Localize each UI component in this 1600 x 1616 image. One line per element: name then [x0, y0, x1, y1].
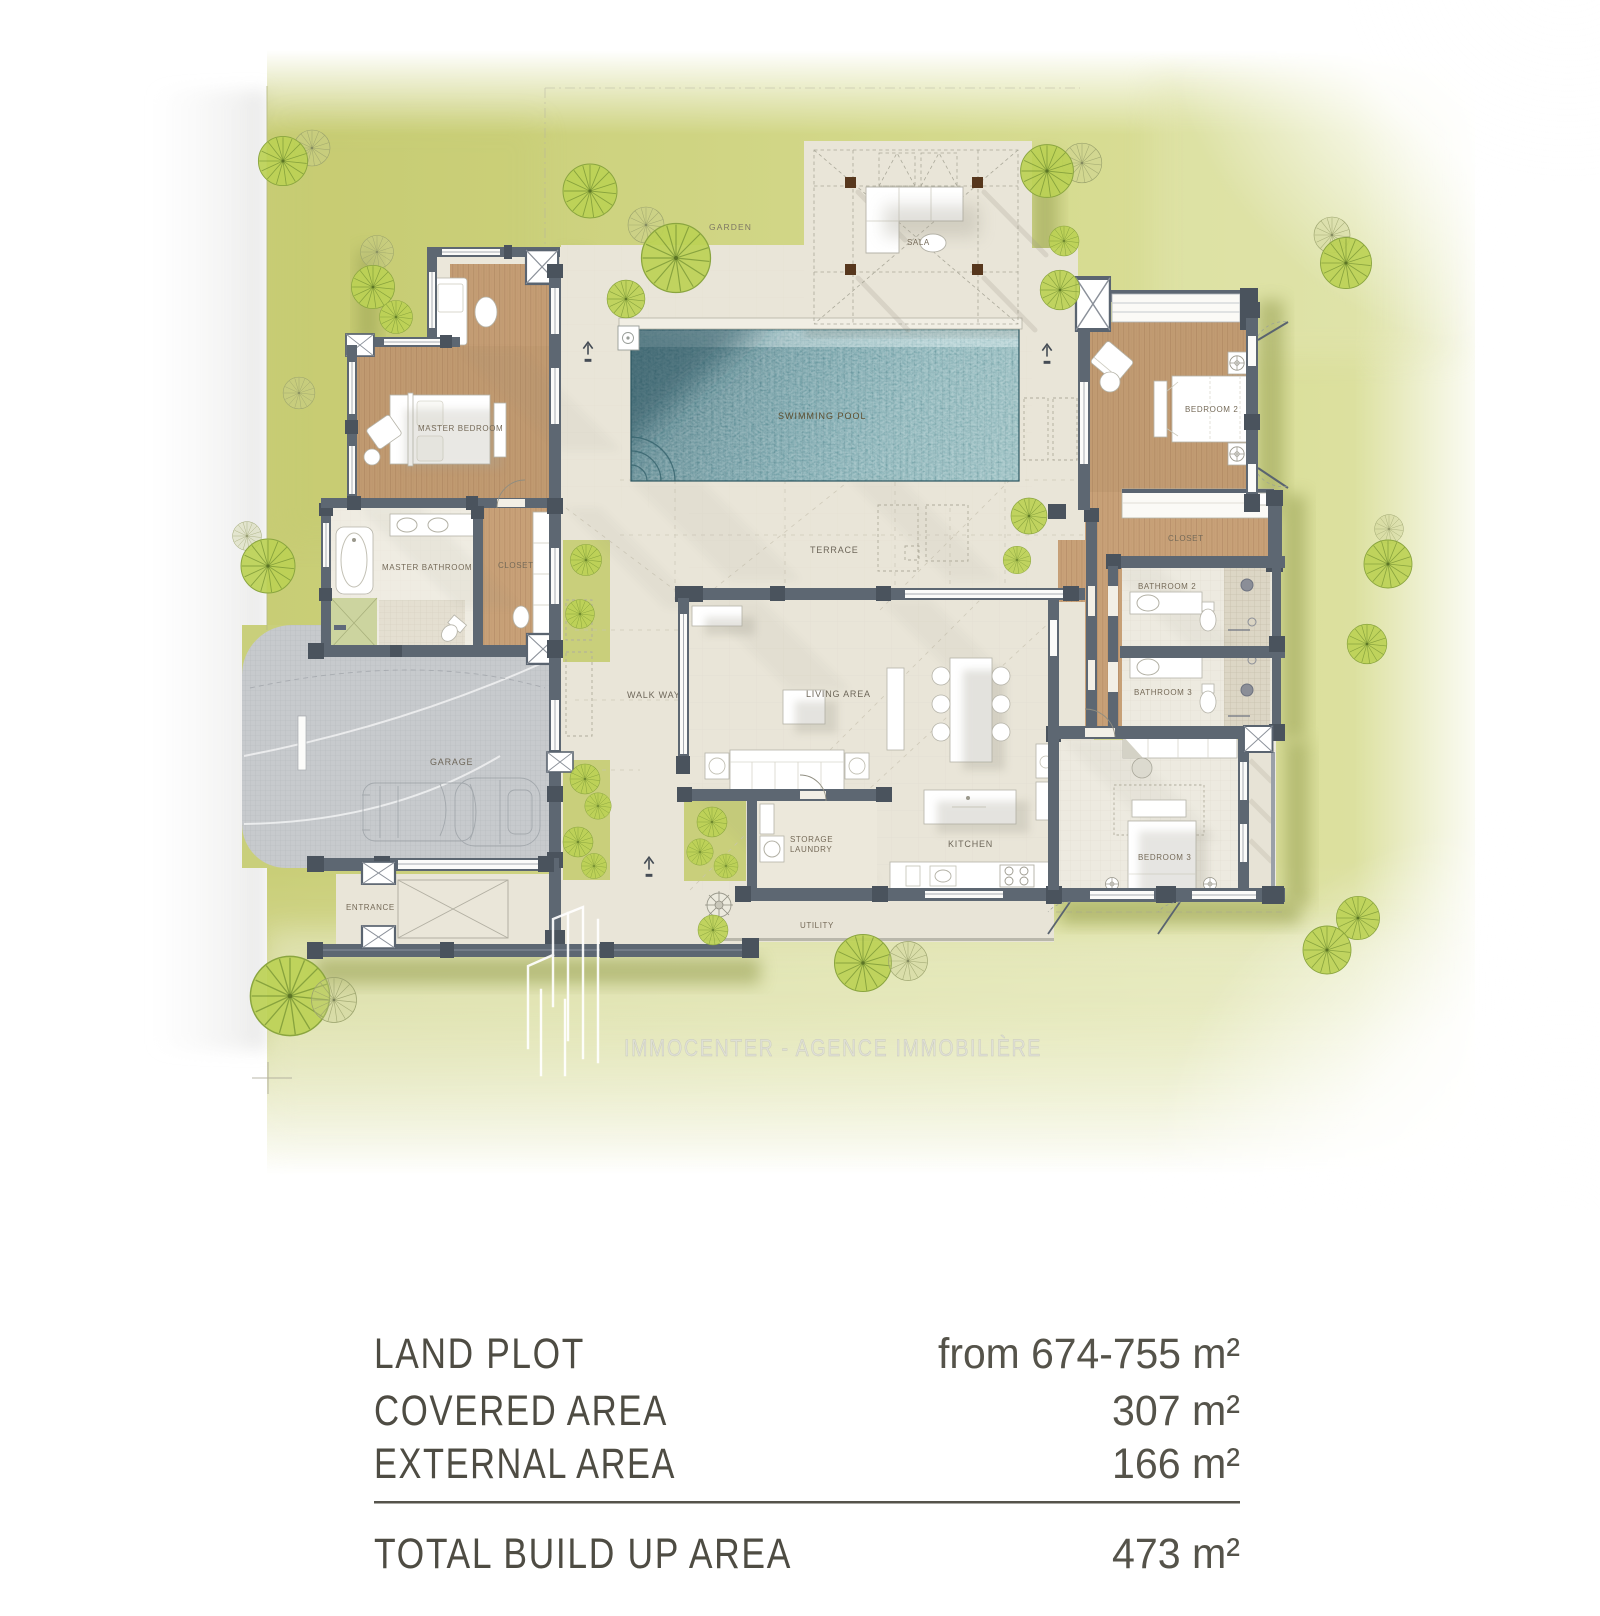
svg-text:STORAGE: STORAGE [790, 835, 833, 844]
svg-text:CLOSET: CLOSET [498, 561, 534, 570]
svg-text:BATHROOM 3: BATHROOM 3 [1134, 688, 1192, 697]
svg-text:SALA: SALA [907, 238, 930, 247]
svg-text:BATHROOM 2: BATHROOM 2 [1138, 582, 1196, 591]
svg-text:GARDEN: GARDEN [709, 222, 752, 232]
svg-text:GARAGE: GARAGE [430, 757, 473, 767]
svg-text:307 m²: 307 m² [1112, 1387, 1240, 1435]
svg-text:TOTAL BUILD UP AREA: TOTAL BUILD UP AREA [374, 1530, 792, 1578]
svg-text:SWIMMING POOL: SWIMMING POOL [778, 411, 867, 421]
svg-text:LIVING AREA: LIVING AREA [806, 689, 871, 699]
svg-text:ENTRANCE: ENTRANCE [346, 903, 395, 912]
svg-text:BEDROOM 3: BEDROOM 3 [1138, 853, 1191, 862]
svg-text:473 m²: 473 m² [1112, 1530, 1240, 1578]
svg-text:BEDROOM 2: BEDROOM 2 [1185, 405, 1238, 414]
svg-text:166 m²: 166 m² [1112, 1440, 1240, 1488]
svg-text:KITCHEN: KITCHEN [948, 839, 993, 849]
svg-text:LAND PLOT: LAND PLOT [374, 1330, 585, 1378]
svg-text:IMMOCENTER - AGENCE IMMOBILIÈR: IMMOCENTER - AGENCE IMMOBILIÈRE [624, 1035, 1042, 1062]
svg-text:EXTERNAL AREA: EXTERNAL AREA [374, 1440, 676, 1488]
svg-text:MASTER BATHROOM: MASTER BATHROOM [382, 563, 472, 572]
svg-text:MASTER BEDROOM: MASTER BEDROOM [418, 424, 503, 433]
svg-text:TERRACE: TERRACE [810, 545, 859, 555]
svg-text:COVERED AREA: COVERED AREA [374, 1387, 668, 1435]
svg-text:WALK WAY: WALK WAY [627, 690, 681, 700]
svg-text:LAUNDRY: LAUNDRY [790, 845, 832, 854]
svg-text:UTILITY: UTILITY [800, 921, 834, 930]
svg-text:from 674-755 m²: from 674-755 m² [938, 1330, 1240, 1378]
svg-text:CLOSET: CLOSET [1168, 534, 1204, 543]
